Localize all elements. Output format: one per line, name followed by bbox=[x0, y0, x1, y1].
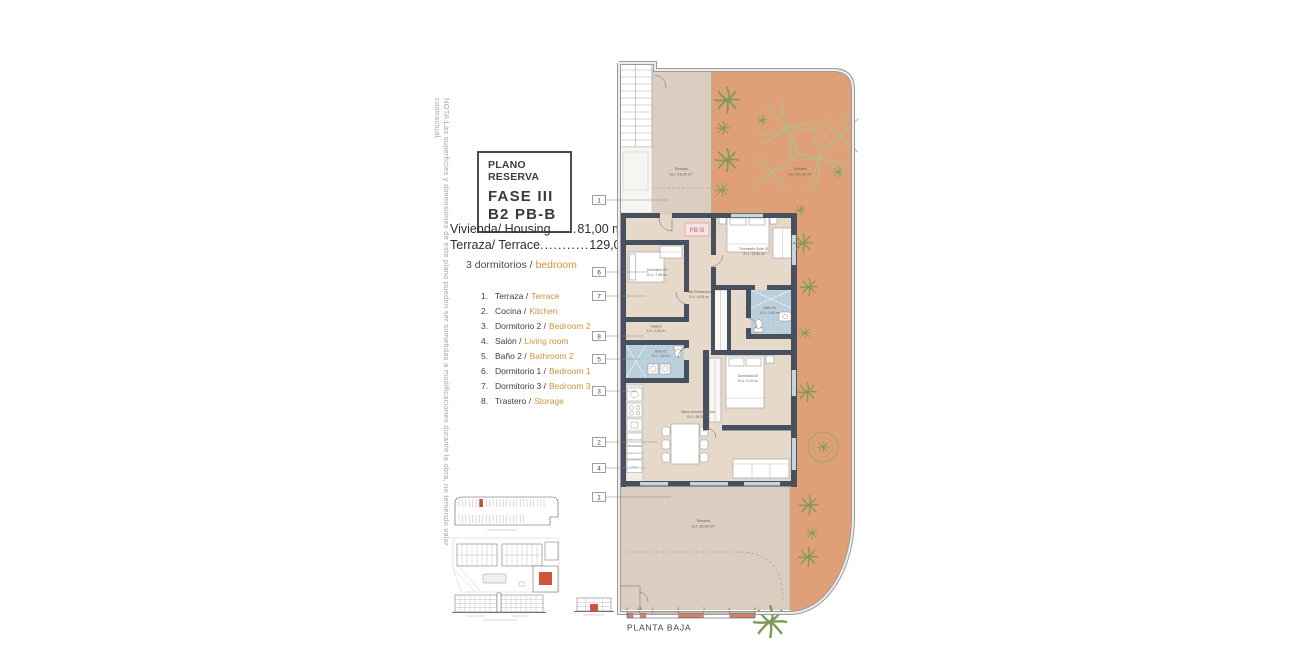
room-label: Terraza bbox=[793, 166, 807, 171]
legend-item: 4.Salón /Living room bbox=[481, 333, 591, 348]
legend-item: 5.Baño 2 /Bathroom 2 bbox=[481, 348, 591, 363]
scale-tick: 0.5 bbox=[637, 607, 642, 611]
room-label: Baño 01 bbox=[764, 306, 777, 310]
room-label: Dormitorio 02 bbox=[738, 374, 758, 378]
room-label: Hall Distribuidor bbox=[687, 290, 712, 294]
room-label: Baño 02 bbox=[655, 350, 667, 354]
legend-item: 3.Dormitorio 2 /Bedroom 2 bbox=[481, 318, 591, 333]
pool-shape bbox=[483, 574, 506, 583]
scale-tick: 0 bbox=[626, 607, 628, 611]
room-area-label: S.U.: 26,26 m² bbox=[687, 415, 710, 419]
room-label: Dormitorio Suite 01 bbox=[739, 247, 768, 251]
kitchen-units: LAVA-VAJILLAS HORNO MICRO FRIGO bbox=[626, 385, 643, 482]
terrace-top-area bbox=[652, 70, 712, 215]
plan-title: PLANTA BAJA bbox=[627, 623, 691, 633]
kitchen-unit-label: LAVA-VAJILLAS bbox=[627, 438, 643, 441]
room-label: Dormitorio 03 bbox=[647, 268, 667, 272]
room-area-label: S.U.: 7,38 m² bbox=[647, 273, 668, 277]
room-area-label: S.U.: 3,40 m² bbox=[760, 311, 781, 315]
room-label: Trastero bbox=[650, 325, 662, 329]
room-area-label: S.U.: 3,50 m² bbox=[652, 354, 671, 358]
svg-text:PB-B: PB-B bbox=[690, 228, 705, 234]
terrace-bottom-area bbox=[620, 486, 790, 610]
plan-marker: 1 bbox=[597, 198, 601, 205]
room-area-label: SU: 21,00 m² bbox=[669, 172, 693, 177]
legend-item: 6.Dormitorio 1 /Bedroom 1 bbox=[481, 363, 591, 378]
plan-kicker: PLANO RESERVA bbox=[488, 159, 570, 183]
room-legend: 1.Terraza /Terrace 2.Cocina /Kitchen 3.D… bbox=[481, 288, 591, 408]
scale-tick: 4 bbox=[728, 607, 730, 611]
plan-marker: 5 bbox=[597, 357, 601, 364]
floor-plan-drawing: LAVA-VAJILLAS HORNO MICRO FRIGO bbox=[585, 58, 895, 638]
scale-tick: 2 bbox=[677, 607, 679, 611]
highlighted-unit bbox=[590, 604, 598, 611]
site-plan-thumbnail bbox=[453, 538, 559, 592]
scale-tick: 1 bbox=[652, 607, 654, 611]
room-area-label: S.U.: 6,00 m² bbox=[689, 295, 710, 299]
legend-item: 7.Dormitorio 3 /Bedroom 3 bbox=[481, 378, 591, 393]
room-area-label: SU: 30,00 m² bbox=[691, 524, 715, 529]
unit-elevation-thumbnail bbox=[574, 598, 614, 615]
room-label: Terraza bbox=[696, 518, 710, 523]
kitchen-unit-label: HORNO MICRO bbox=[627, 453, 643, 455]
room-area-label: S.U.: 13,50 m² bbox=[743, 252, 766, 256]
plan-marker: 2 bbox=[597, 440, 601, 447]
room-area-label: S.U.: 2,36 m² bbox=[647, 329, 666, 333]
plan-marker: 8 bbox=[597, 334, 601, 341]
legend-item: 1.Terraza /Terrace bbox=[481, 288, 591, 303]
unit-tag: PB-B bbox=[685, 223, 709, 236]
site-thumbnails bbox=[450, 490, 625, 645]
room-area-label: S.U.: 9,10 m² bbox=[738, 379, 759, 383]
garage-plan-thumbnail bbox=[455, 497, 558, 530]
legend-item: 8.Trastero /Storage bbox=[481, 393, 591, 408]
legend-item: 2.Cocina /Kitchen bbox=[481, 303, 591, 318]
room-area-label: SU: 82,00 m² bbox=[788, 172, 812, 177]
stairwell bbox=[619, 63, 652, 213]
floor-plan-sheet: NOTA:Las superficies y dimensiones de es… bbox=[0, 0, 1291, 650]
plan-marker: 3 bbox=[597, 389, 601, 396]
highlighted-unit bbox=[539, 572, 552, 585]
plan-marker: 6 bbox=[597, 270, 601, 277]
highlighted-parking-space bbox=[479, 499, 482, 507]
scale-bar: 0 0.5 1 2 3 4 5 PLANTA BAJA bbox=[626, 607, 756, 633]
room-label: Terraza bbox=[674, 166, 688, 171]
elevation-thumbnails bbox=[452, 593, 546, 620]
plan-marker: 4 bbox=[597, 466, 601, 473]
disclaimer-note: NOTA:Las superficies y dimensiones de es… bbox=[433, 98, 451, 568]
room-label: Salón comedor-cocina bbox=[681, 410, 715, 414]
bedrooms-line: 3 dormitorios / bedroom bbox=[466, 259, 577, 271]
phase-title: FASE III bbox=[488, 188, 570, 206]
plan-marker: 7 bbox=[597, 294, 601, 301]
scale-tick: 3 bbox=[703, 607, 705, 611]
scale-tick: 5 bbox=[754, 607, 756, 611]
